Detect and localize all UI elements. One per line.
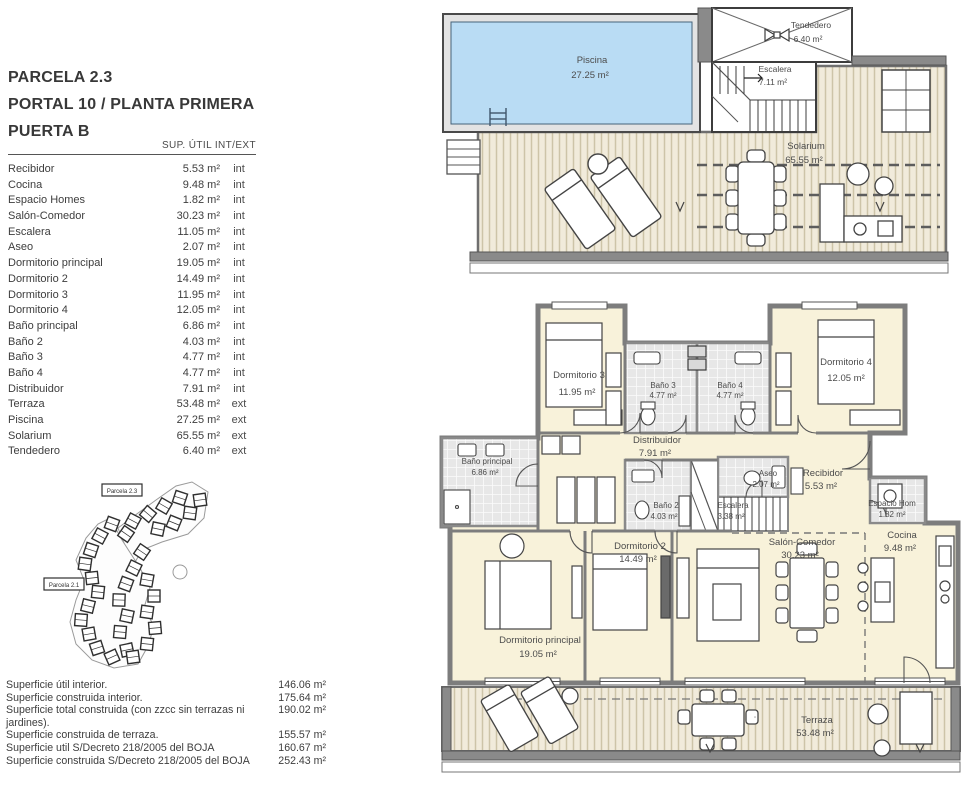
area-row-aname: Terraza (8, 398, 158, 410)
espacio-label: Espacio Hom (868, 499, 916, 508)
site-plan-sketch: Parcela 2.3 Parcela 2.1 (30, 476, 230, 678)
summary-row-slabel: Superficie construida de terraza. (6, 729, 266, 742)
area-row: Tendedero6.40 m²ext (8, 445, 258, 461)
site-roundabout (173, 565, 187, 579)
bano2-label: Baño 2 (653, 501, 679, 510)
summary-row-slabel: Superficie construida S/Decreto 218/2005… (6, 755, 266, 768)
area-row-aunit: ext (220, 398, 258, 410)
area-row-aname: Cocina (8, 179, 158, 191)
area-row: Piscina27.25 m²ext (8, 414, 258, 430)
distribuidor-label: Distribuidor (633, 435, 681, 446)
bano3-area: 4.77 m² (649, 391, 676, 400)
area-row-aname: Tendedero (8, 445, 158, 457)
salon-area: 30.23 m² (781, 550, 819, 561)
area-row: Terraza53.48 m²ext (8, 398, 258, 414)
area-row-aunit: int (220, 163, 258, 175)
area-row-aval: 65.55 m² (158, 430, 220, 442)
area-row: Dormitorio principal19.05 m²int (8, 257, 258, 273)
salon-label: Salón-Comedor (769, 537, 836, 548)
area-row-aval: 6.40 m² (158, 445, 220, 457)
site-tag-left: Parcela 2.1 (44, 578, 84, 590)
area-row-aunit: int (220, 336, 258, 348)
area-row-aval: 14.49 m² (158, 273, 220, 285)
area-row-aname: Dormitorio 4 (8, 304, 158, 316)
summary-row-sval: 155.57 m² (266, 729, 326, 742)
area-row-aname: Aseo (8, 241, 158, 253)
espacio-area: 1.82 m² (878, 510, 905, 519)
solarium-label: Solarium (787, 141, 825, 152)
cocina-label: Cocina (887, 530, 917, 541)
escalera-area: 3.38 m² (717, 512, 744, 521)
area-row-aunit: int (220, 367, 258, 379)
summary-row: Superficie util S/Decreto 218/2005 del B… (6, 742, 326, 755)
bano4-label: Baño 4 (717, 381, 743, 390)
area-row: Aseo2.07 m²int (8, 241, 258, 257)
summary-row-slabel: Superficie construida interior. (6, 692, 266, 705)
roof-escalera-area: 7.11 m² (759, 77, 787, 87)
recibidor-furniture (791, 468, 803, 494)
solarium-area: 65.55 m² (785, 155, 823, 166)
roof-escalera-label: Escalera (758, 64, 791, 74)
terraza-area: 53.48 m² (796, 728, 834, 739)
area-row-aval: 11.95 m² (158, 289, 220, 301)
terraza-label: Terraza (801, 715, 833, 726)
dorm-ppl-area: 19.05 m² (519, 649, 557, 660)
area-row-aname: Escalera (8, 226, 158, 238)
area-row-aname: Espacio Homes (8, 194, 158, 206)
area-row-aname: Dormitorio principal (8, 257, 158, 269)
aseo-area: 2.07 m² (752, 480, 779, 489)
area-row: Dormitorio 214.49 m²int (8, 273, 258, 289)
area-row-aunit: int (220, 179, 258, 191)
area-row-aunit: ext (220, 430, 258, 442)
area-row-aname: Piscina (8, 414, 158, 426)
bano-ppl-area: 6.86 m² (471, 468, 498, 477)
bano-ppl-label: Baño principal (462, 457, 513, 466)
area-row-aname: Dormitorio 2 (8, 273, 158, 285)
area-row: Baño 44.77 m²int (8, 367, 258, 383)
area-row-aunit: int (220, 273, 258, 285)
dorm2-area: 14.49 m² (619, 554, 657, 565)
dorm2-label: Dormitorio 2 (614, 541, 666, 552)
title-portal: PORTAL 10 / PLANTA PRIMERA (8, 91, 254, 118)
site-tag-top: Parcela 2.3 (102, 484, 142, 496)
summary-rows: Superficie útil interior.146.06 m²Superf… (6, 679, 326, 767)
area-row-aval: 4.77 m² (158, 367, 220, 379)
roof-plan: Piscina 27.25 m² Tendedero 6.40 m² (430, 4, 975, 296)
roof-bottom-ledge (470, 263, 948, 273)
tendedero-area: 6.40 m² (794, 34, 823, 44)
area-row-aunit: int (220, 320, 258, 332)
area-row: Dormitorio 311.95 m²int (8, 289, 258, 305)
area-row: Solarium65.55 m²ext (8, 430, 258, 446)
area-row-aval: 53.48 m² (158, 398, 220, 410)
area-row-aname: Baño principal (8, 320, 158, 332)
area-row: Dormitorio 412.05 m²int (8, 304, 258, 320)
area-row-aname: Solarium (8, 430, 158, 442)
area-row-aunit: int (220, 210, 258, 222)
roof-storage-room (882, 70, 930, 132)
dorm3-label: Dormitorio 3 (553, 370, 605, 381)
site-tag-top-label: Parcela 2.3 (107, 489, 138, 495)
area-row-aval: 4.03 m² (158, 336, 220, 348)
area-row-aname: Salón-Comedor (8, 210, 158, 222)
recibidor-area: 5.53 m² (805, 481, 837, 492)
area-row-aval: 5.53 m² (158, 163, 220, 175)
area-row-aname: Baño 4 (8, 367, 158, 379)
aseo-label: Aseo (759, 469, 778, 478)
summary-row-sval: 160.67 m² (266, 742, 326, 755)
area-row: Escalera11.05 m²int (8, 226, 258, 242)
summary-row: Superficie construida interior.175.64 m² (6, 692, 326, 705)
escalera-label: Escalera (717, 501, 749, 510)
area-row: Baño principal6.86 m²int (8, 320, 258, 336)
area-row-aval: 4.77 m² (158, 351, 220, 363)
bano3-label: Baño 3 (650, 381, 676, 390)
cocina-area: 9.48 m² (884, 543, 916, 554)
dorm-ppl-label: Dormitorio principal (499, 635, 581, 646)
summary-row-sval: 252.43 m² (266, 755, 326, 768)
area-row-aval: 19.05 m² (158, 257, 220, 269)
area-row-aname: Dormitorio 3 (8, 289, 158, 301)
tendedero: Tendedero 6.40 m² (698, 8, 852, 62)
area-row: Salón-Comedor30.23 m²int (8, 210, 258, 226)
dorm4-label: Dormitorio 4 (820, 357, 872, 368)
area-row-aname: Distribuidor (8, 383, 158, 395)
area-row-aunit: int (220, 383, 258, 395)
area-row-aval: 2.07 m² (158, 241, 220, 253)
area-row-aunit: ext (220, 414, 258, 426)
summary-row: Superficie construida de terraza.155.57 … (6, 729, 326, 742)
area-row-aunit: int (220, 304, 258, 316)
area-row-aname: Recibidor (8, 163, 158, 175)
floorplan-sheet: PARCELA 2.3 PORTAL 10 / PLANTA PRIMERA P… (0, 0, 975, 800)
piscina-area: 27.25 m² (571, 70, 609, 81)
area-row: Baño 34.77 m²int (8, 351, 258, 367)
area-table-rows: Recibidor5.53 m²intCocina9.48 m²intEspac… (8, 163, 258, 461)
pool: Piscina 27.25 m² (443, 14, 700, 132)
main-floor-plan: Dormitorio 3 11.95 m² Baño 3 4.77 m² Bañ… (430, 296, 975, 800)
dorm3-area: 11.95 m² (559, 387, 596, 398)
area-row-aval: 6.86 m² (158, 320, 220, 332)
area-row: Espacio Homes1.82 m²int (8, 194, 258, 210)
bano2-area: 4.03 m² (650, 512, 677, 521)
area-table-header: SUP. ÚTIL INT/EXT (8, 140, 256, 155)
site-tag-left-label: Parcela 2.1 (49, 583, 80, 589)
area-row-aval: 7.91 m² (158, 383, 220, 395)
recibidor-label: Recibidor (803, 468, 843, 479)
roof-stairs: Escalera 7.11 m² (712, 62, 816, 132)
area-row-aunit: int (220, 194, 258, 206)
area-row-aval: 30.23 m² (158, 210, 220, 222)
dorm4-area: 12.05 m² (827, 373, 865, 384)
tendedero-label: Tendedero (791, 20, 831, 30)
deck-steps (447, 140, 480, 174)
area-row-aunit: int (220, 226, 258, 238)
area-row: Cocina9.48 m²int (8, 179, 258, 195)
area-row: Distribuidor7.91 m²int (8, 383, 258, 399)
summary-row: Superficie construida S/Decreto 218/2005… (6, 755, 326, 768)
summary-row-sval: 146.06 m² (266, 679, 326, 692)
area-row-aval: 9.48 m² (158, 179, 220, 191)
bano4-area: 4.77 m² (716, 391, 743, 400)
roof-bottom-wall (470, 252, 948, 261)
summary-row-slabel: Superficie util S/Decreto 218/2005 del B… (6, 742, 266, 755)
area-row-aval: 12.05 m² (158, 304, 220, 316)
summary-row: Superficie útil interior.146.06 m² (6, 679, 326, 692)
summary-row-slabel: Superficie útil interior. (6, 679, 266, 692)
area-row-aunit: int (220, 289, 258, 301)
summary-row-sval: 190.02 m² (266, 704, 326, 717)
area-row-aname: Baño 3 (8, 351, 158, 363)
roof-top-wall (852, 56, 946, 65)
area-row-aval: 27.25 m² (158, 414, 220, 426)
piscina-label: Piscina (577, 55, 608, 66)
area-row: Baño 24.03 m²int (8, 336, 258, 352)
area-row-aval: 1.82 m² (158, 194, 220, 206)
page-title: PARCELA 2.3 PORTAL 10 / PLANTA PRIMERA P… (8, 64, 254, 145)
area-row-aunit: int (220, 241, 258, 253)
summary-row: Superficie total construida (con zzcc si… (6, 704, 326, 729)
area-row-aname: Baño 2 (8, 336, 158, 348)
area-row-aunit: ext (220, 445, 258, 457)
area-row-aval: 11.05 m² (158, 226, 220, 238)
title-parcela: PARCELA 2.3 (8, 64, 254, 91)
distribuidor-area: 7.91 m² (639, 448, 671, 459)
area-row-aunit: int (220, 257, 258, 269)
area-row-aunit: int (220, 351, 258, 363)
summary-row-sval: 175.64 m² (266, 692, 326, 705)
area-row: Recibidor5.53 m²int (8, 163, 258, 179)
summary-row-slabel: Superficie total construida (con zzcc si… (6, 704, 266, 729)
